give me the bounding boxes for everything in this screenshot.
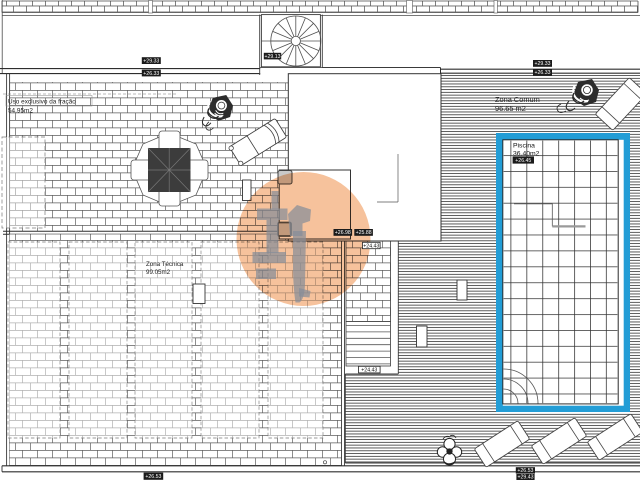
svg-text:+29.13: +29.13 (264, 54, 280, 60)
svg-text:Zona Comum: Zona Comum (495, 95, 540, 104)
svg-text:+24.43: +24.43 (361, 368, 377, 374)
svg-text:54.95m2: 54.95m2 (8, 108, 33, 115)
svg-text:+24.43: +24.43 (363, 243, 379, 249)
svg-text:99.05m2: 99.05m2 (146, 269, 171, 276)
svg-text:Piscina: Piscina (513, 143, 535, 150)
svg-text:+29.33: +29.33 (143, 58, 159, 64)
svg-text:+26.33: +26.33 (534, 70, 550, 76)
svg-text:96.65 m2: 96.65 m2 (495, 104, 526, 113)
svg-text:+29.33: +29.33 (534, 61, 550, 67)
svg-text:+26.45: +26.45 (515, 158, 531, 164)
svg-text:+26.98: +26.98 (335, 230, 351, 236)
svg-text:+25.88: +25.88 (356, 230, 372, 236)
svg-text:Zona Técnica: Zona Técnica (146, 261, 184, 268)
svg-text:Uso exclusivo da fração: Uso exclusivo da fração (8, 99, 76, 106)
svg-text:+29.43: +29.43 (517, 475, 533, 480)
svg-text:+26.33: +26.33 (143, 71, 159, 77)
svg-text:+26.53: +26.53 (145, 474, 161, 480)
svg-text:+26.53: +26.53 (517, 468, 533, 474)
